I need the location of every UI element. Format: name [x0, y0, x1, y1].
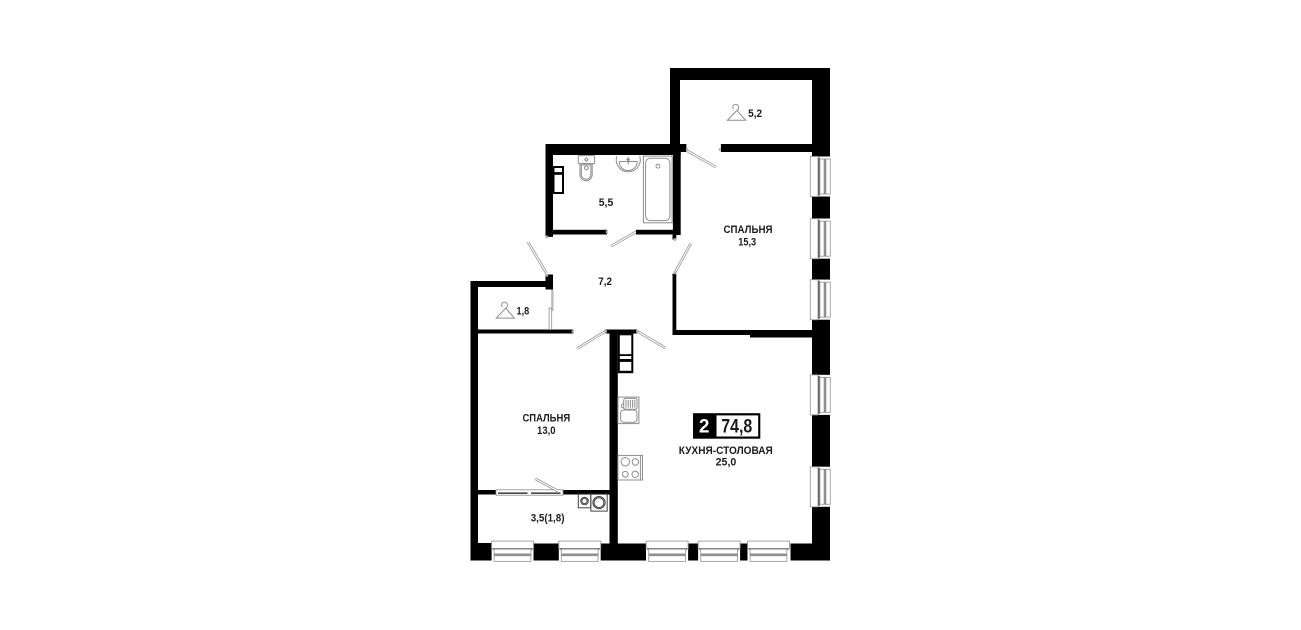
svg-text:74,8: 74,8: [721, 416, 752, 437]
svg-text:СПАЛЬНЯ: СПАЛЬНЯ: [522, 412, 570, 424]
svg-text:1,8: 1,8: [517, 306, 530, 318]
svg-text:2: 2: [699, 416, 710, 437]
svg-text:3,5(1,8): 3,5(1,8): [531, 513, 565, 525]
svg-text:5,2: 5,2: [748, 108, 762, 120]
svg-text:СПАЛЬНЯ: СПАЛЬНЯ: [724, 224, 773, 236]
svg-text:13,0: 13,0: [537, 425, 556, 437]
svg-text:5,5: 5,5: [599, 197, 614, 209]
svg-text:15,3: 15,3: [738, 237, 756, 249]
svg-text:КУХНЯ-СТОЛОВАЯ: КУХНЯ-СТОЛОВАЯ: [679, 445, 773, 457]
svg-text:7,2: 7,2: [598, 276, 612, 288]
svg-text:25,0: 25,0: [716, 457, 737, 469]
